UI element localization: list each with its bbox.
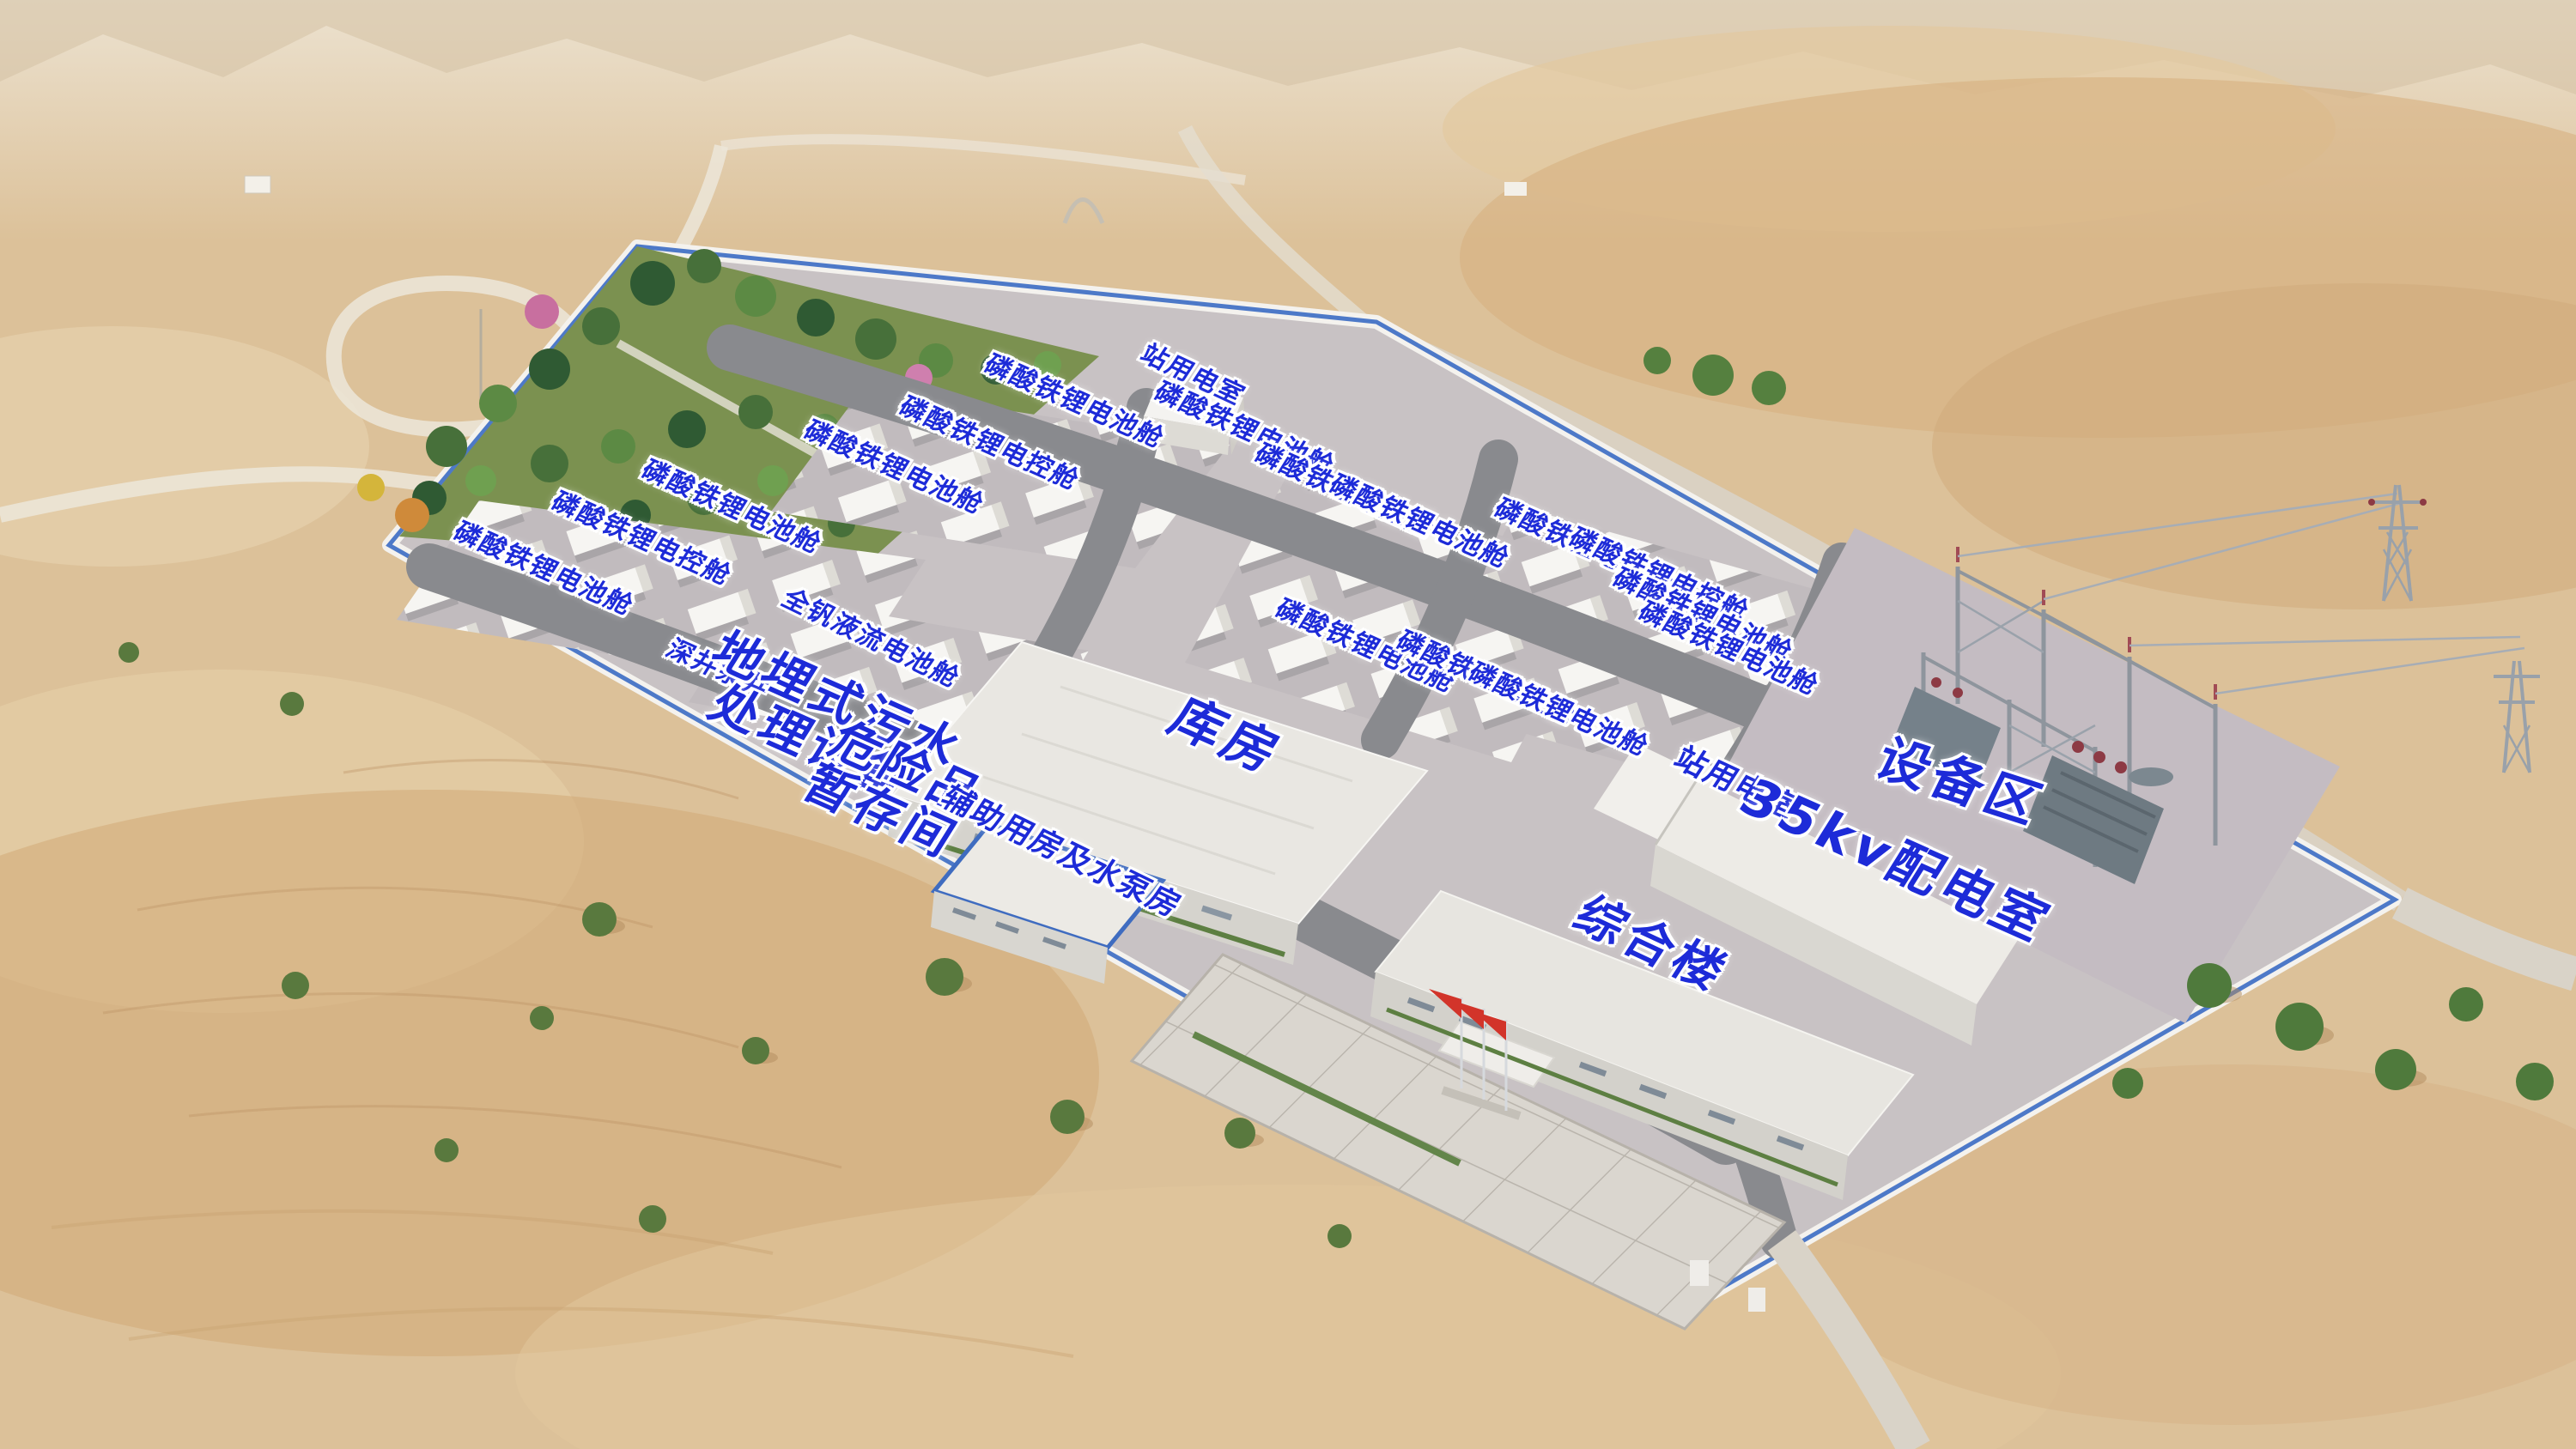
- aerial-site-rendering: 站用电室 磷酸铁锂电池舱 磷酸铁锂电控舱 磷酸铁锂电池舱 磷酸铁锂电池舱 磷酸铁…: [0, 0, 2576, 1449]
- flowering-shrub-yellow: [357, 474, 385, 501]
- distant-building: [1504, 182, 1527, 196]
- flowering-shrub-orange: [395, 498, 429, 532]
- distant-building: [245, 176, 270, 193]
- scene-canvas: [0, 0, 2576, 1449]
- flowering-tree-pink: [525, 294, 559, 329]
